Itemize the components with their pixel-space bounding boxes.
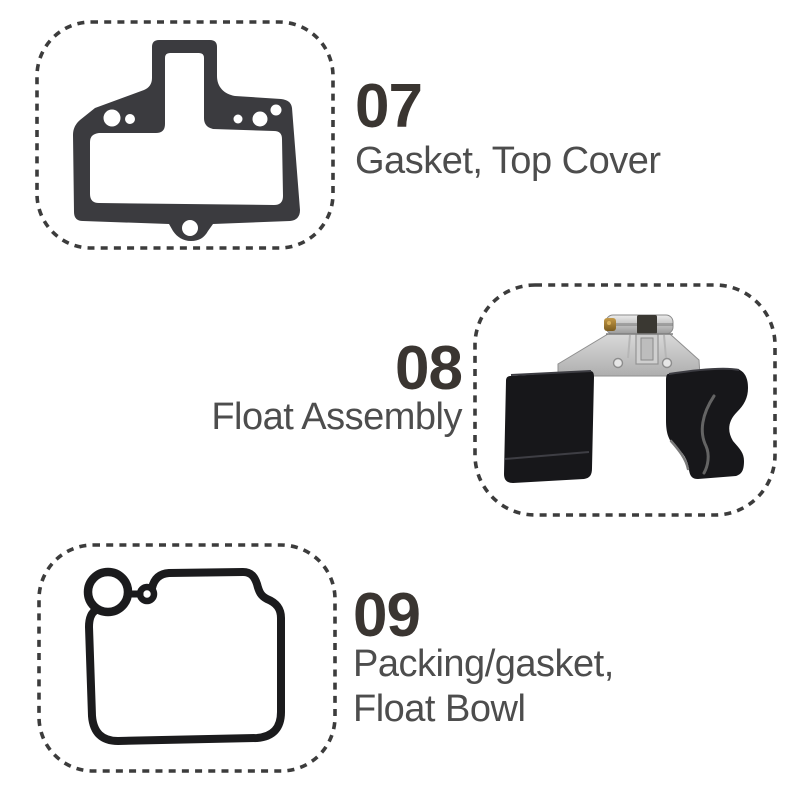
part-panel-09 [27, 533, 347, 783]
part-number-07: 07 [355, 76, 422, 138]
left-float [504, 371, 594, 483]
part-number-08: 08 [395, 338, 462, 400]
part-label-09-line2: Float Bowl [353, 687, 614, 732]
part-label-07: Gasket, Top Cover [355, 139, 661, 184]
top-cover-gasket-drawing [73, 40, 300, 241]
part-label-09-line1: Packing/gasket, [353, 642, 614, 687]
float-assembly-drawing [504, 315, 748, 483]
part-label-08: Float Assembly [211, 395, 462, 440]
part-panel-07 [25, 10, 345, 260]
float-bowl-gasket-drawing [88, 572, 281, 741]
part-label-09: Packing/gasket, Float Bowl [353, 642, 614, 732]
part-panel-08 [463, 273, 787, 527]
product-parts-diagram: 07 Gasket, Top Cover [0, 0, 800, 800]
part-number-09: 09 [353, 585, 420, 647]
